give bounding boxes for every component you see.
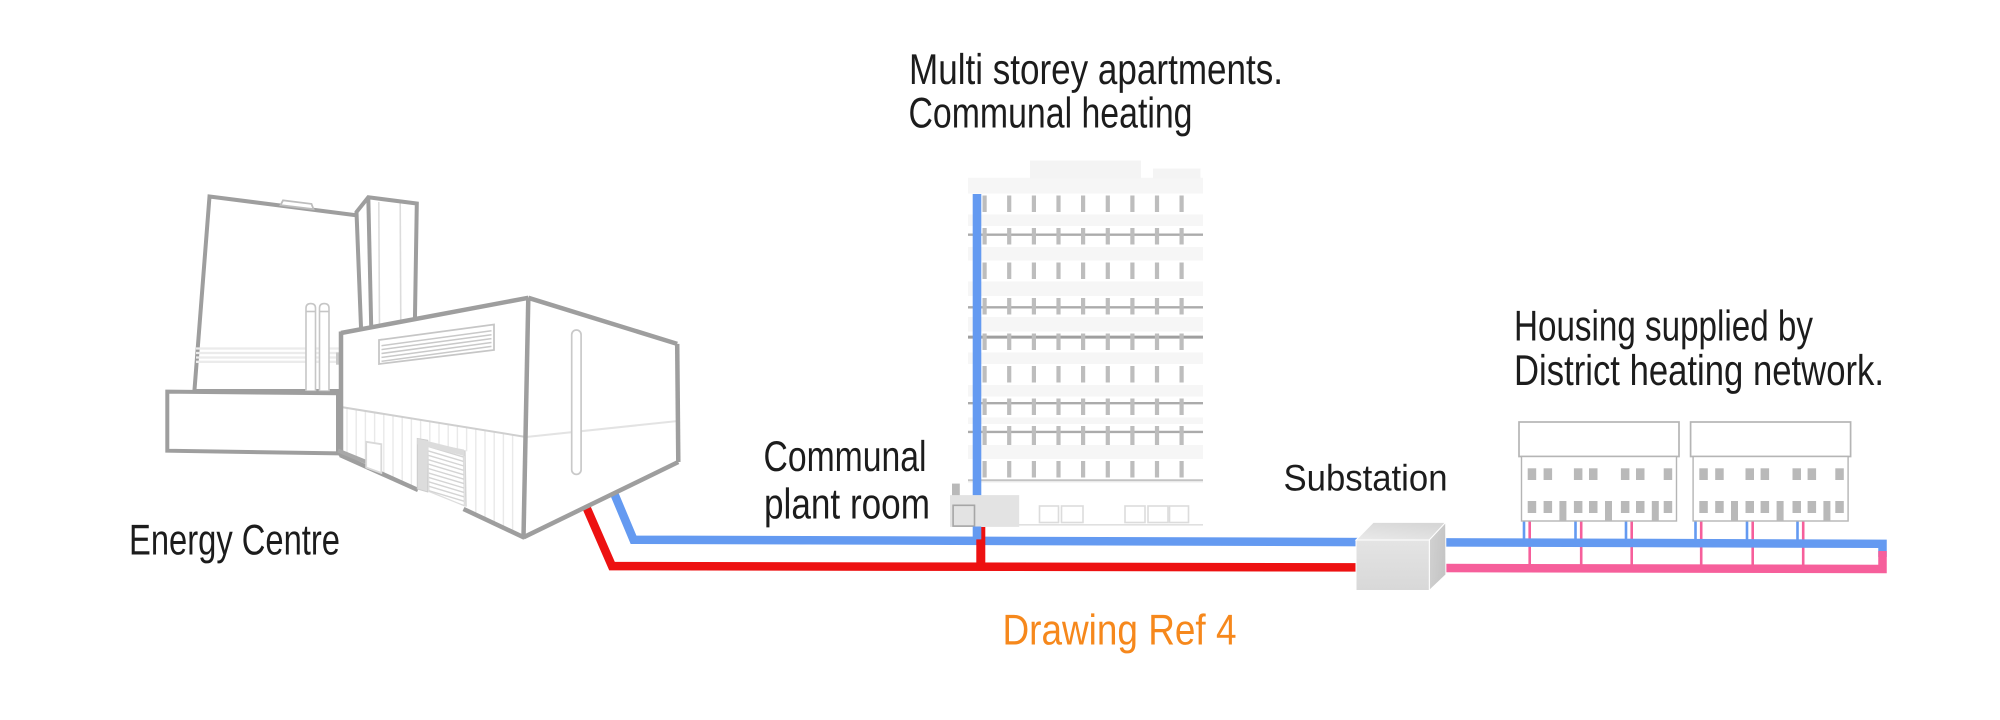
svg-text:Communal: Communal xyxy=(764,433,927,481)
svg-text:Multi storey apartments.: Multi storey apartments. xyxy=(909,46,1283,94)
svg-text:Energy Centre: Energy Centre xyxy=(129,517,340,565)
svg-text:District heating network.: District heating network. xyxy=(1514,347,1884,395)
svg-text:Substation: Substation xyxy=(1284,458,1448,499)
svg-text:plant room: plant room xyxy=(764,481,930,529)
svg-text:Communal heating: Communal heating xyxy=(909,90,1193,138)
svg-text:Drawing Ref 4: Drawing Ref 4 xyxy=(1003,607,1237,655)
svg-text:Housing supplied by: Housing supplied by xyxy=(1514,303,1813,351)
